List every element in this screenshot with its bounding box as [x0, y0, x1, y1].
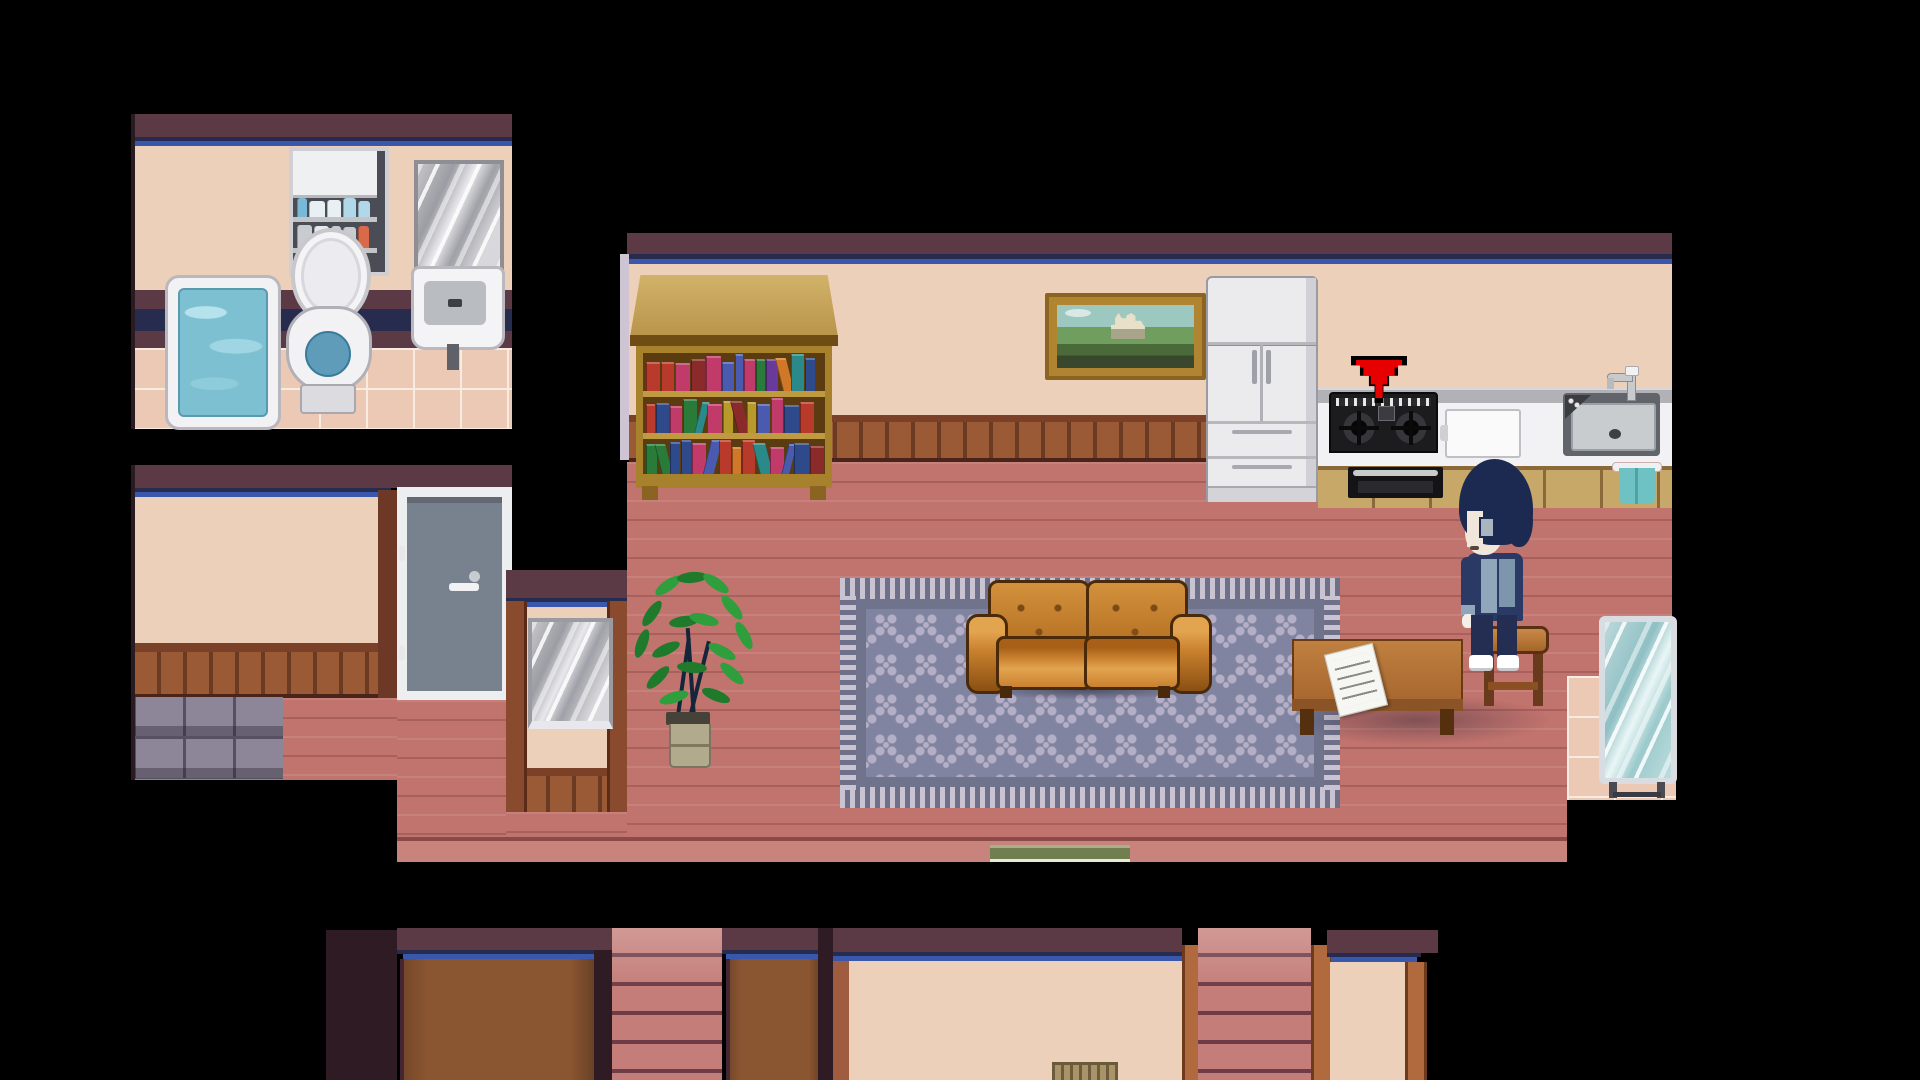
- grill-handle: [1353, 470, 1438, 476]
- sink-rack-dots: [1568, 398, 1580, 408]
- sideroom-wainscot-rail: [135, 643, 378, 652]
- oven-grill: [1348, 467, 1443, 498]
- kitchen-sink[interactable]: [1563, 393, 1660, 456]
- painting-cloud: [1065, 309, 1091, 317]
- entry-door[interactable]: [397, 487, 512, 701]
- player-character[interactable]: [1455, 459, 1536, 669]
- stove-control-strip: [1336, 398, 1431, 406]
- potted-plant: [625, 572, 750, 770]
- sink-pipe: [447, 344, 459, 370]
- living-wall-band: [627, 233, 1672, 254]
- sink-basin: [424, 281, 486, 325]
- standing-mirror-glass: [1599, 616, 1677, 784]
- bathtub[interactable]: [165, 275, 281, 430]
- bookshelf[interactable]: [630, 275, 838, 508]
- floor-edge-strip: [397, 837, 1567, 862]
- character-shoe-right: [1497, 655, 1519, 671]
- door-hinge-bottom: [399, 645, 405, 661]
- door-inner-shade: [407, 497, 502, 503]
- game-viewport: [0, 0, 1920, 1080]
- alcove-post-left: [506, 601, 527, 812]
- character-eye: [1479, 517, 1495, 538]
- cabinet-top-panel: [293, 151, 377, 198]
- fridge-side-shade: [1306, 278, 1316, 500]
- bookshelf-row-1: [645, 355, 823, 391]
- character-mouth: [1470, 546, 1479, 550]
- bookshelf-hutch-rail: [630, 335, 838, 346]
- standing-mirror[interactable]: [1599, 616, 1677, 802]
- couch-leg-left: [1000, 686, 1012, 698]
- sink-drain: [448, 299, 462, 307]
- toilet[interactable]: [286, 228, 401, 413]
- bookshelf-foot-right: [810, 486, 826, 500]
- fridge-drawer-line: [1208, 456, 1316, 459]
- green-doormat: [990, 845, 1130, 862]
- table-leg-left: [1300, 709, 1314, 735]
- refrigerator[interactable]: [1206, 276, 1318, 502]
- corridor-floor: [397, 700, 512, 841]
- paper-note-text-lines: [1333, 652, 1380, 707]
- lower-b-band: [722, 928, 833, 950]
- lower-left-dark-wall: [326, 930, 397, 1080]
- lower-section-b: [722, 928, 833, 1080]
- plant-leaf: [644, 663, 673, 692]
- staircase-left[interactable]: [612, 928, 722, 1080]
- mirror-glass-streaks: [418, 164, 500, 268]
- landscape-painting[interactable]: [1045, 293, 1206, 380]
- lower-b-brown-panel: [726, 959, 822, 1080]
- fridge-handle-right: [1266, 350, 1271, 384]
- sideroom-wall: [135, 497, 378, 643]
- grill-window: [1358, 481, 1433, 493]
- fridge-door-split: [1260, 345, 1263, 421]
- kitchen-sink-basin: [1571, 403, 1656, 451]
- sideroom-gray-tiles: [133, 697, 283, 779]
- cutting-board: [1445, 409, 1521, 458]
- character-jacket-panel-right: [1499, 559, 1515, 607]
- toilet-water: [305, 331, 351, 377]
- door-handle-lever: [449, 583, 479, 591]
- plant-leaf: [701, 570, 732, 596]
- lower-section-a: [397, 928, 612, 1080]
- lower-section-d: [1327, 930, 1438, 1080]
- sideroom-wall-pillar: [378, 490, 397, 700]
- bookshelf-row-2: [645, 399, 823, 433]
- lower-c-left-strip: [833, 961, 849, 1080]
- couch-seat-left: [996, 636, 1092, 690]
- fridge-handle-left: [1252, 350, 1257, 384]
- bathroom-mirror[interactable]: [414, 160, 504, 272]
- couch-leg-right: [1158, 686, 1170, 698]
- couch-tufts: [996, 590, 1176, 640]
- plant-leaf: [632, 628, 653, 660]
- character-leg-right: [1497, 615, 1517, 659]
- fridge-kickplate: [1208, 486, 1316, 502]
- fridge-mid-line: [1208, 421, 1316, 424]
- stove-burner-right: [1391, 411, 1431, 445]
- bathroom-room: [131, 114, 512, 429]
- painting-castle-shade: [1111, 329, 1145, 339]
- staircase-right[interactable]: [1198, 928, 1311, 1080]
- bookshelf-hutch-top: [630, 275, 838, 337]
- lower-section-c: [833, 928, 1182, 1080]
- hall-alcove: [506, 570, 627, 812]
- bathroom-sink[interactable]: [411, 266, 505, 350]
- plant-leaf: [650, 638, 682, 661]
- plant-leaf: [706, 640, 738, 664]
- alcove-band: [506, 570, 627, 601]
- character-leg-left: [1471, 615, 1493, 659]
- alcove-wainscot-rail: [524, 768, 607, 776]
- lower-a-band: [397, 928, 612, 950]
- character-jacket-panel-left: [1481, 559, 1497, 613]
- cabinet-shelf-lip: [293, 217, 377, 222]
- cutting-board-handle: [1440, 425, 1448, 441]
- plant-leaf: [658, 688, 690, 708]
- bathroom-left-edge: [131, 114, 135, 429]
- plant-leaf: [677, 661, 708, 674]
- painting-canvas: [1057, 305, 1194, 368]
- lower-c-furniture-top: [1052, 1062, 1118, 1080]
- lower-c-band: [833, 928, 1182, 952]
- plant-leaf: [688, 611, 720, 629]
- lower-a-right-edge: [594, 950, 612, 1080]
- lower-d-post: [1405, 962, 1427, 1080]
- character-hair-side: [1507, 495, 1533, 547]
- toilet-base: [300, 384, 356, 414]
- sideroom-wall-band: [131, 465, 512, 488]
- shelf-board-1: [643, 391, 825, 397]
- faucet-cap: [1625, 366, 1639, 376]
- lower-d-band: [1327, 930, 1438, 953]
- character-shoe-left: [1469, 655, 1493, 671]
- bookshelf-row-3: [645, 441, 823, 474]
- door-hinge-top: [399, 545, 405, 561]
- lower-c-wall: [849, 961, 1182, 1080]
- mirror-base-bar: [1613, 792, 1661, 797]
- faucet-tip: [1607, 378, 1614, 389]
- plant-leaves: [625, 572, 750, 722]
- shelf-board-2: [643, 433, 825, 439]
- lower-d-wall: [1330, 962, 1405, 1080]
- stove-center-control: [1378, 406, 1395, 421]
- alcove-mirror[interactable]: [528, 618, 613, 729]
- couch[interactable]: [966, 580, 1206, 702]
- alcove-mirror-streaks: [532, 622, 609, 721]
- rug-side-left: [840, 596, 856, 790]
- alcove-wainscot: [524, 776, 607, 812]
- bathroom-wall-band: [131, 114, 512, 137]
- plant-leaf: [639, 598, 665, 629]
- fridge-drawer-handle-1: [1232, 430, 1292, 434]
- plant-leaf: [717, 659, 747, 687]
- plant-leaf: [700, 685, 732, 706]
- fridge-drawer-handle-2: [1232, 465, 1292, 469]
- sideroom-wainscot: [135, 652, 378, 694]
- standing-mirror-streaks: [1605, 622, 1671, 778]
- gas-stove[interactable]: [1329, 392, 1438, 453]
- table-leg-right: [1440, 709, 1454, 735]
- bookshelf-foot-left: [642, 486, 658, 500]
- lower-b-divider: [818, 928, 833, 1080]
- living-left-trim: [620, 254, 629, 460]
- lower-a-brown-panel: [400, 959, 598, 1080]
- toilet-bowl: [286, 306, 372, 392]
- kitchen-sink-drain: [1609, 429, 1621, 439]
- door-handle-knob: [469, 571, 480, 582]
- cabinet-shelf-items-top: [295, 197, 375, 217]
- sideroom-left-edge: [131, 465, 135, 780]
- couch-seat-right: [1084, 636, 1180, 690]
- stove-burner-left: [1339, 411, 1379, 445]
- bookshelf-apron: [636, 474, 832, 488]
- hand-towel: [1619, 468, 1655, 504]
- plant-leaf: [718, 592, 746, 622]
- plant-pot: [669, 724, 711, 768]
- bathtub-water: [178, 288, 268, 417]
- stool-crossbar: [1488, 682, 1538, 690]
